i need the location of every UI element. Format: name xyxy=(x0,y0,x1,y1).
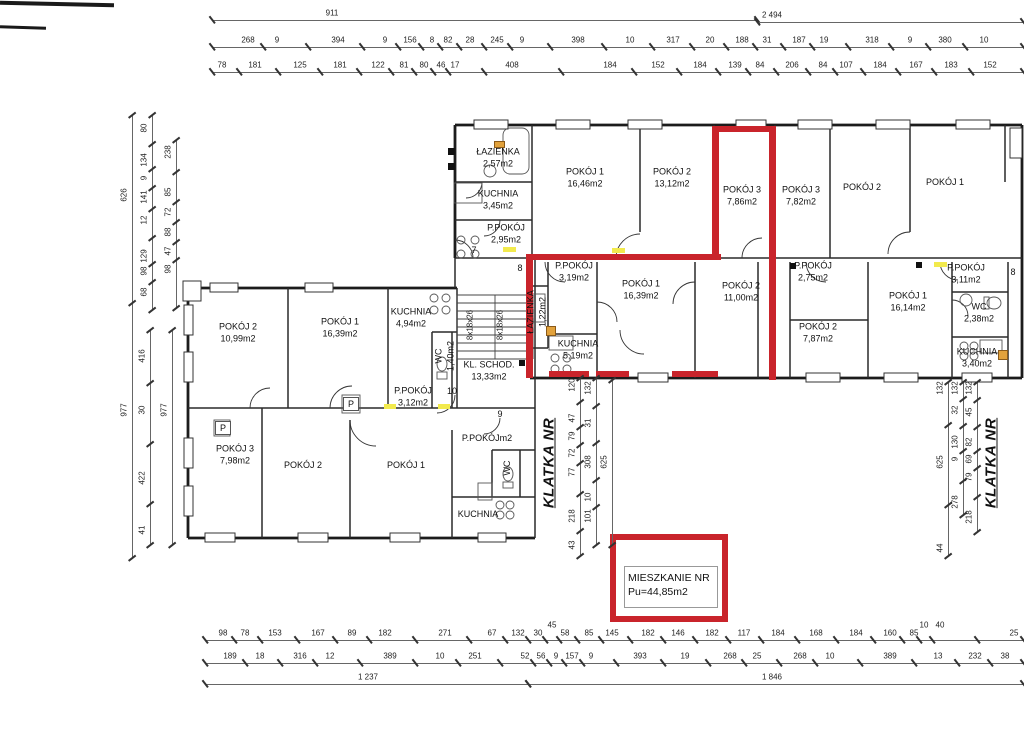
door-number-marker: 8 xyxy=(517,263,522,273)
dimension-value: 187 xyxy=(792,36,805,45)
dimension-value: 232 xyxy=(968,652,981,661)
apartment-legend-box: MIESZKANIE NR Pu=44,85m2 xyxy=(610,534,728,622)
room-label: KUCHNIA4,94m2 xyxy=(391,306,432,329)
room-label: POKÓJ 27,87m2 xyxy=(799,321,837,344)
electrical-symbol xyxy=(448,148,455,155)
dimension-line xyxy=(176,140,177,308)
dimension-value: 626 xyxy=(120,188,129,201)
dimension-value: 132 xyxy=(584,381,593,394)
room-label: KL. SCHOD.13,33m2 xyxy=(463,359,514,382)
dimension-value: 218 xyxy=(965,510,974,523)
room-label: POKÓJ 1 xyxy=(926,177,964,189)
dimension-value: 278 xyxy=(951,495,960,508)
dimension-value: 17 xyxy=(451,61,460,70)
apartment-legend-text: MIESZKANIE NR Pu=44,85m2 xyxy=(624,566,718,608)
dimension-value: 157 xyxy=(565,652,578,661)
dimension-value: 30 xyxy=(534,629,543,638)
room-label: POKÓJ 116,39m2 xyxy=(321,316,359,339)
threshold-highlight xyxy=(503,247,516,252)
dimension-value: 152 xyxy=(651,61,664,70)
dimension-value: 44 xyxy=(936,544,945,553)
dimension-value: 46 xyxy=(437,61,446,70)
dimension-value: 9 xyxy=(908,36,912,45)
fixture-highlight xyxy=(998,350,1008,360)
dimension-value: 101 xyxy=(584,509,593,522)
door-number-marker: 8 xyxy=(1010,267,1015,277)
door-number-marker: 9 xyxy=(497,409,502,419)
dimension-value: 9 xyxy=(383,36,387,45)
dimension-value: 182 xyxy=(641,629,654,638)
room-label: P.POKÓJ3,11m2 xyxy=(947,262,985,285)
dimension-value: 72 xyxy=(164,208,173,217)
dimension-value: 122 xyxy=(371,61,384,70)
dimension-value: 19 xyxy=(820,36,829,45)
room-label: POKÓJ 116,39m2 xyxy=(622,278,660,301)
room-label: POKÓJ 2 xyxy=(843,182,881,194)
dimension-value: 134 xyxy=(140,153,149,166)
room-label: P.POKÓJm2 xyxy=(462,433,512,445)
dimension-value: 146 xyxy=(671,629,684,638)
dimension-line xyxy=(132,115,133,558)
dimension-value: 9 xyxy=(951,457,960,461)
dimension-value: 68 xyxy=(140,288,149,297)
door-number-marker: 7 xyxy=(471,245,476,255)
dimension-value: 625 xyxy=(600,455,609,468)
stair-dimension-note: 8x18x26 xyxy=(496,310,505,340)
dimension-value: 117 xyxy=(738,629,751,638)
dimension-value: 268 xyxy=(793,652,806,661)
dimension-value: 79 xyxy=(965,473,974,482)
dimension-value: 129 xyxy=(140,249,149,262)
dimension-value: 10 xyxy=(626,36,635,45)
dimension-value: 10 xyxy=(436,652,445,661)
dimension-value: 160 xyxy=(883,629,896,638)
room-label: WC2,38m2 xyxy=(964,301,994,324)
dimension-value: 2 494 xyxy=(762,11,782,20)
room-label: POKÓJ 1 xyxy=(387,460,425,472)
dimension-value: 56 xyxy=(537,652,546,661)
dimension-value: 389 xyxy=(883,652,896,661)
dimension-value: 145 xyxy=(605,629,618,638)
dimension-value: 181 xyxy=(333,61,346,70)
threshold-highlight xyxy=(612,248,625,253)
room-label: P.POKÓJ3,19m2 xyxy=(555,260,593,283)
dimension-value: 422 xyxy=(138,471,147,484)
electrical-symbol xyxy=(916,262,922,268)
dimension-value: 40 xyxy=(936,621,945,630)
room-label: ŁAZIENKA2,57m2 xyxy=(476,146,520,169)
dimension-value: 218 xyxy=(568,509,577,522)
dimension-value: 30 xyxy=(138,406,147,415)
dimension-value: 245 xyxy=(490,36,503,45)
dimension-value: 398 xyxy=(571,36,584,45)
dimension-value: 52 xyxy=(521,652,530,661)
dimension-value: 251 xyxy=(468,652,481,661)
dimension-value: 9 xyxy=(275,36,279,45)
stair-dimension-note: 8x18x26 xyxy=(466,310,475,340)
dimension-value: 9 xyxy=(589,652,593,661)
dimension-value: 393 xyxy=(633,652,646,661)
room-label: KUCHNIA5,19m2 xyxy=(558,338,599,361)
dimension-value: 184 xyxy=(771,629,784,638)
room-label: KUCHNIA3,40m2 xyxy=(957,346,998,369)
dimension-line xyxy=(212,72,1023,73)
room-label: POKÓJ 37,82m2 xyxy=(782,184,820,207)
dimension-value: 18 xyxy=(256,652,265,661)
dimension-value: 10 xyxy=(826,652,835,661)
dimension-value: 184 xyxy=(693,61,706,70)
dimension-value: 141 xyxy=(140,190,149,203)
dimension-value: 85 xyxy=(910,629,919,638)
room-label: POKÓJ 211,00m2 xyxy=(722,280,760,303)
dimension-value: 189 xyxy=(223,652,236,661)
dimension-value: 80 xyxy=(140,124,149,133)
dimension-line xyxy=(205,663,1023,664)
dimension-value: 31 xyxy=(584,419,593,428)
dimension-value: 85 xyxy=(164,188,173,197)
dimension-value: 25 xyxy=(753,652,762,661)
dimension-value: 98 xyxy=(219,629,228,638)
dimension-value: 271 xyxy=(438,629,451,638)
dimension-line xyxy=(612,380,613,545)
room-label: POKÓJ 116,14m2 xyxy=(889,290,927,313)
dimension-value: 977 xyxy=(160,403,169,416)
legend-area: Pu=44,85m2 xyxy=(628,585,714,599)
apartment-threshold xyxy=(672,371,718,377)
legend-title: MIESZKANIE NR xyxy=(628,571,714,585)
room-label: POKÓJ 37,98m2 xyxy=(216,443,254,466)
dimension-value: 184 xyxy=(873,61,886,70)
dimension-value: 31 xyxy=(763,36,772,45)
room-label: POKÓJ 210,99m2 xyxy=(219,321,257,344)
dimension-value: 12 xyxy=(140,216,149,225)
dimension-value: 12 xyxy=(326,652,335,661)
dimension-value: 206 xyxy=(785,61,798,70)
dimension-line xyxy=(948,382,949,556)
room-label: POKÓJ 37,86m2 xyxy=(723,184,761,207)
dimension-line xyxy=(205,684,528,685)
door-number-marker: P xyxy=(215,421,231,435)
dimension-value: 9 xyxy=(554,652,558,661)
dimension-value: 394 xyxy=(331,36,344,45)
dimension-value: 10 xyxy=(920,621,929,630)
room-label: POKÓJ 116,46m2 xyxy=(566,166,604,189)
dimension-value: 188 xyxy=(735,36,748,45)
dimension-value: 43 xyxy=(568,541,577,550)
dimension-value: 120 xyxy=(568,378,577,391)
dimension-value: 167 xyxy=(909,61,922,70)
dimension-value: 9 xyxy=(520,36,524,45)
dimension-value: 911 xyxy=(326,9,339,18)
dimension-value: 380 xyxy=(938,36,951,45)
dimension-line xyxy=(212,47,1023,48)
dimension-value: 132 xyxy=(951,381,960,394)
dimension-value: 78 xyxy=(218,61,227,70)
dimension-value: 977 xyxy=(120,403,129,416)
dimension-value: 132 xyxy=(511,629,524,638)
dimension-value: 107 xyxy=(839,61,852,70)
dimension-value: 181 xyxy=(248,61,261,70)
dimension-value: 317 xyxy=(666,36,679,45)
room-label: KUCHNIA3,45m2 xyxy=(478,188,519,211)
threshold-highlight xyxy=(934,262,947,267)
room-label: P.POKÓJ2,75m2 xyxy=(794,260,832,283)
apartment-outline-segment xyxy=(712,126,776,132)
dimension-value: 82 xyxy=(444,36,453,45)
dimension-value: 32 xyxy=(951,406,960,415)
dimension-value: 389 xyxy=(383,652,396,661)
dimension-value: 19 xyxy=(681,652,690,661)
electrical-symbol xyxy=(519,360,525,366)
floor-plan-canvas: MIESZKANIE NR Pu=44,85m2 ŁAZIENKA2,57m2K… xyxy=(0,0,1024,752)
dimension-line xyxy=(977,382,978,532)
dimension-value: 184 xyxy=(603,61,616,70)
dimension-value: 125 xyxy=(293,61,306,70)
dimension-line xyxy=(172,330,173,545)
room-label: P.POKÓJ3,12m2 xyxy=(394,385,432,408)
dimension-value: 408 xyxy=(505,61,518,70)
dimension-value: 69 xyxy=(965,455,974,464)
dimension-value: 268 xyxy=(723,652,736,661)
dimension-value: 132 xyxy=(936,381,945,394)
dimension-value: 416 xyxy=(138,349,147,362)
dimension-value: 183 xyxy=(944,61,957,70)
dimension-value: 316 xyxy=(293,652,306,661)
stairwell-label-right: KLATKA NR xyxy=(983,418,1000,508)
stairwell-label-left: KLATKA NR xyxy=(541,418,558,508)
dimension-value: 20 xyxy=(706,36,715,45)
apartment-outline-segment xyxy=(769,126,776,380)
dimension-value: 182 xyxy=(378,629,391,638)
dimension-value: 98 xyxy=(164,265,173,274)
dimension-value: 38 xyxy=(1001,652,1010,661)
room-label: POKÓJ 213,12m2 xyxy=(653,166,691,189)
dimension-line xyxy=(528,684,1023,685)
dimension-value: 182 xyxy=(705,629,718,638)
dimension-value: 80 xyxy=(420,61,429,70)
dimension-value: 89 xyxy=(348,629,357,638)
dimension-value: 10 xyxy=(980,36,989,45)
dimension-value: 318 xyxy=(865,36,878,45)
dimension-value: 8 xyxy=(430,36,434,45)
dimension-value: 1 846 xyxy=(762,673,782,682)
dimension-value: 78 xyxy=(241,629,250,638)
room-label: KUCHNIA xyxy=(458,509,499,521)
dimension-value: 98 xyxy=(140,267,149,276)
dimension-value: 84 xyxy=(819,61,828,70)
dimension-value: 139 xyxy=(728,61,741,70)
dimension-value: 84 xyxy=(756,61,765,70)
dimension-value: 82 xyxy=(965,438,974,447)
dimension-value: 67 xyxy=(488,629,497,638)
dimension-value: 13 xyxy=(934,652,943,661)
dimension-value: 45 xyxy=(965,408,974,417)
door-number-marker: P xyxy=(343,397,359,411)
dimension-value: 308 xyxy=(584,455,593,468)
dimension-line xyxy=(757,22,1023,23)
dimension-value: 79 xyxy=(568,432,577,441)
dimension-value: 47 xyxy=(164,247,173,256)
dimension-value: 41 xyxy=(138,526,147,535)
dimension-value: 130 xyxy=(951,435,960,448)
dimension-value: 81 xyxy=(400,61,409,70)
dimension-value: 156 xyxy=(403,36,416,45)
dimension-value: 9 xyxy=(140,176,149,180)
electrical-symbol xyxy=(448,163,455,170)
room-label: ŁAZIENKA1,22m2 xyxy=(525,290,548,334)
dimension-value: 85 xyxy=(585,629,594,638)
dimension-value: 238 xyxy=(164,145,173,158)
room-label: WC1,40m2 xyxy=(433,341,456,371)
dimension-value: 625 xyxy=(936,455,945,468)
door-number-marker: 10 xyxy=(447,386,457,396)
dimension-value: 47 xyxy=(568,414,577,423)
dimension-value: 28 xyxy=(466,36,475,45)
threshold-highlight xyxy=(438,404,450,409)
room-label: P.POKÓJ2,95m2 xyxy=(487,222,525,245)
dimension-value: 153 xyxy=(268,629,281,638)
dimension-value: 58 xyxy=(561,629,570,638)
room-label: WC xyxy=(502,461,514,476)
dimension-value: 168 xyxy=(809,629,822,638)
dimension-value: 88 xyxy=(164,228,173,237)
dimension-value: 45 xyxy=(548,621,557,630)
dimension-value: 152 xyxy=(983,61,996,70)
dimension-line xyxy=(212,20,757,21)
apartment-outline-segment xyxy=(712,126,719,260)
dimension-value: 167 xyxy=(311,629,324,638)
dimension-value: 77 xyxy=(568,468,577,477)
dimension-value: 184 xyxy=(849,629,862,638)
dimension-value: 10 xyxy=(584,493,593,502)
room-label: POKÓJ 2 xyxy=(284,460,322,472)
dimension-line xyxy=(150,330,151,545)
apartment-outline-segment xyxy=(526,254,721,260)
apartment-threshold xyxy=(596,371,629,377)
dimension-value: 25 xyxy=(1010,629,1019,638)
dimension-value: 268 xyxy=(241,36,254,45)
dimension-value: 72 xyxy=(568,449,577,458)
dimension-value: 1 237 xyxy=(358,673,378,682)
dimension-value: 132 xyxy=(965,381,974,394)
